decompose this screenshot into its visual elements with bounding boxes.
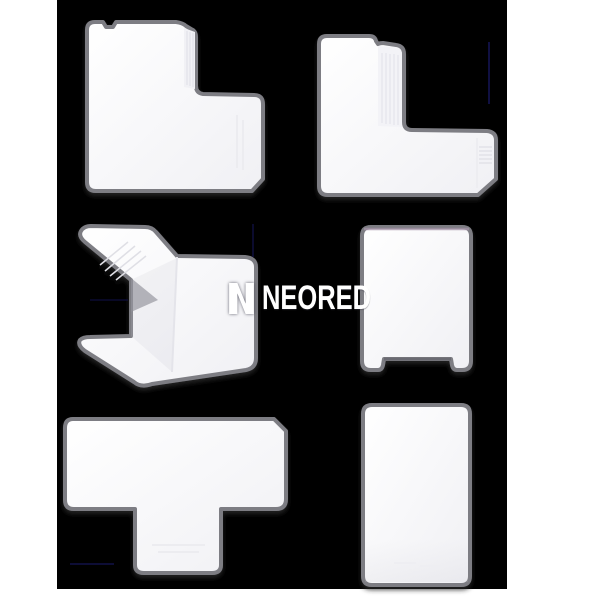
piece-l-angle-body [319, 36, 496, 195]
piece-cover-strip [363, 405, 470, 585]
piece-tee-body [65, 419, 286, 573]
piece-coupler-body [362, 227, 471, 370]
piece-tee [65, 419, 286, 573]
product-photo: NEORED [0, 0, 600, 600]
piece-external-corner [79, 226, 256, 386]
piece-cover-strip-bottom-shade [365, 540, 468, 582]
product-pieces-svg [0, 0, 600, 600]
piece-coupler [362, 227, 471, 370]
piece-flat-angle-corner [87, 22, 263, 191]
piece-l-angle [319, 36, 496, 195]
